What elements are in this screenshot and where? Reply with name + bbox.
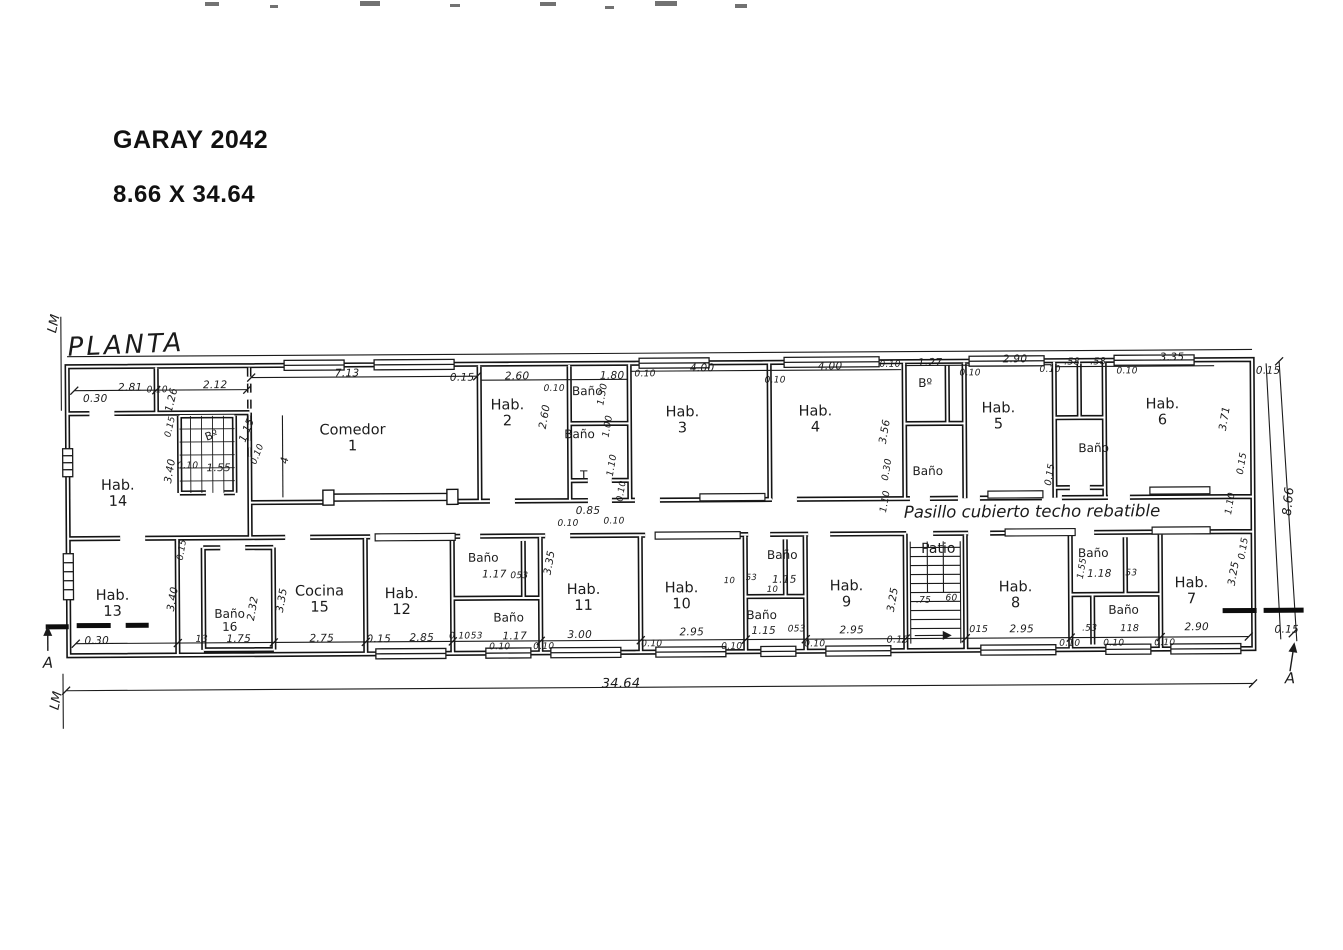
ptitle-planta: PLANTA [67,329,185,362]
floor-plan: PLANTALMLMAAPasillo cubierto techo rebat… [29,291,1327,729]
rsm-ba-o: Baño [572,385,603,398]
dim-2-95: 2.95 [1009,624,1034,635]
rsm-ba-o-16: Baño 16 [214,608,245,634]
dim-2-32: 2.32 [246,596,261,622]
dim-0-10: 0.10 [721,643,742,653]
dim-015: 015 [969,625,988,635]
dim-1-15: 1.15 [772,575,797,586]
dim-1-75: 1.75 [226,634,251,645]
dim-2-81: 2.81 [118,383,143,394]
dim-13: 13 [195,635,208,645]
scanned-floor-plan-page: { "header": { "title": "GARAY 2042", "su… [0,0,1343,950]
dim-0-15: 0.15 [177,539,190,562]
dim-1-55: 1.55 [206,463,231,474]
dim-0-15: 0.15 [450,373,475,384]
dim-0-10: 0.10 [489,643,510,653]
dim-2-75: 2.75 [309,633,334,644]
dim-60: 60 [945,594,957,604]
room-hab-13: Hab. 13 [96,589,130,621]
dim-0-10: 0.10 [147,386,168,396]
room-hab-5: Hab. 5 [982,401,1016,433]
rsm-ba-o: Baño [1078,442,1109,455]
dim-3-40: 3.40 [166,586,181,612]
room-hab-4: Hab. 4 [799,404,833,436]
dim-0-10: 0.10 [879,361,900,371]
dim-0-10: 0.10 [1040,366,1061,376]
dim-0-30: 0.30 [83,394,108,405]
rsm-ba-o: Baño [468,552,499,565]
dim-3-40: 3.40 [163,458,178,484]
dim-1-55: 1.55 [1077,557,1090,580]
rsm-t: T [580,469,587,482]
dim-0-15: 0.15 [366,634,391,645]
dim-0-10: 0.10 [1117,367,1138,377]
dim-2-90: 2.90 [1003,354,1028,365]
dim-10: 10 [767,586,778,595]
dim-2-95: 2.95 [839,625,864,636]
rsm-ba-o: Baño [912,465,943,478]
room-hab-3: Hab. 3 [666,405,700,437]
dim-1-10: 1.10 [879,490,893,514]
dim-3-35: 3.35 [543,550,558,576]
room-hab-2: Hab. 2 [491,398,525,430]
dim-0-10: 0.10 [250,443,267,466]
dim-0-85: 0.85 [576,506,601,517]
dim-053: 053 [510,572,528,582]
dim-1-30: 1.30 [596,383,610,407]
dim-1-18: 1.18 [1087,569,1112,580]
dim-4: 4 [280,456,292,465]
dim-118: 118 [1120,624,1139,634]
dim-1-80: 1.80 [600,371,625,382]
dim-0-10: 0.10 [544,385,565,395]
anno-a: A [43,655,53,671]
dim-2-85: 2.85 [409,633,434,644]
dim-0-10: 0.10 [804,640,825,650]
dim-3-56: 3.56 [878,419,893,445]
dim-3-25: 3.25 [1227,561,1242,587]
dim-0-10: 0.10 [1059,640,1080,650]
dim-1-26: 1.26 [164,387,181,414]
dim-1-17: 1.17 [502,631,527,642]
dim-8-66: 8.66 [1280,486,1296,516]
dim-0-10: 0.10 [557,520,578,530]
dim-3-00: 3.00 [567,630,592,641]
dim-1-15: 1.15 [238,417,258,444]
dim-0-15: 0.15 [887,635,909,645]
dim-3-35: 3.35 [275,587,290,613]
rsm-b: Bº [204,428,220,444]
dim-0-10: 0.10 [616,480,629,503]
dim-0-15: 0.15 [164,416,178,439]
room-hab-7: Hab. 7 [1175,576,1209,608]
dim-0-15: 0.15 [1256,366,1281,377]
dim-1-15: 1.15 [751,626,776,637]
dim-3-35: 3.35 [1160,352,1185,363]
dim-0-10: 0.10 [960,369,981,379]
dim-0-15: 0.15 [1274,625,1299,636]
dim-34-64: 34.64 [602,677,641,691]
dim-53: 53 [1125,569,1137,579]
anno-a: A [1285,670,1295,686]
dim-0-30: 0.30 [84,636,109,647]
dim-2-60: 2.60 [538,404,553,430]
dim-0-15: 0.15 [1237,537,1251,561]
room-hab-14: Hab. 14 [101,479,135,511]
dim-2-12: 2.12 [203,380,228,391]
anno-pasillo-cubierto-techo-rebatible: Pasillo cubierto techo rebatible [904,502,1160,521]
dim-1-00: 1.00 [602,415,616,439]
dim-0-10: 0.10 [635,370,656,380]
rsm-ba-o: Baño [1108,604,1139,617]
dim-0-15: 0.15 [1236,452,1250,476]
title-block: GARAY 2042 8.66 X 34.64 [113,126,268,209]
dim-53: .53 [1082,625,1097,635]
dim-1-27: 1.27 [918,358,943,369]
anno-lm: LM [46,313,63,334]
room-hab-12: Hab. 12 [385,587,419,619]
rsm-ba-o: Baño [1078,547,1109,560]
dim-53: 53 [471,632,483,642]
rsm-ba-o: Baño [746,609,777,622]
dim-0-15: 0.15 [1044,463,1058,487]
dim-2-95: 2.95 [679,627,704,638]
dim-0-10: 0.10 [177,462,198,472]
page-title: GARAY 2042 [113,126,268,155]
dim-10: 10 [724,577,735,586]
room-hab-6: Hab. 6 [1146,397,1180,429]
dim-0-10: 0.10 [603,517,624,527]
rsm-b: Bº [918,377,932,390]
room-cocina-15: Cocina 15 [295,584,344,616]
anno-lm: LM [48,690,65,711]
dim-2-60: 2.60 [505,371,530,382]
dim-1-10: 1.10 [1224,492,1238,516]
dim-7-13: 7.13 [335,368,360,379]
rsm-patio: Patio [921,542,955,557]
plan-labels: PLANTALMLMAAPasillo cubierto techo rebat… [29,291,1327,729]
dim-0-10: 0.10 [1154,639,1175,649]
dim-3-71: 3.71 [1218,406,1233,432]
dim-4-00: 4.00 [818,361,843,372]
rsm-ba-o: Baño [493,611,524,624]
dim-0-10: 0.10 [533,643,554,653]
dim-0-10: 0.10 [449,632,470,642]
dim-75: .75 [916,597,931,607]
dim-0-10: 0.10 [765,376,786,386]
dim-4-00: 4.00 [690,363,715,374]
dim-1-10: 1.10 [606,454,620,478]
dim-3-25: 3.25 [886,587,901,613]
dim-1-17: 1.17 [482,569,507,580]
room-hab-8: Hab. 8 [999,580,1033,612]
scan-artifacts [150,0,850,16]
dim-58: .58 [1090,357,1106,367]
dim-53: 53 [746,574,757,583]
dim-0-10: 0.10 [641,640,662,650]
room-comedor-1: Comedor 1 [319,423,385,455]
dim-053: 053 [788,625,806,635]
lot-dimensions: 8.66 X 34.64 [113,181,268,209]
rsm-ba-o: Baño [564,428,595,441]
dim-2-90: 2.90 [1184,622,1209,633]
dim-0-10: 0.10 [1103,639,1124,649]
room-hab-11: Hab. 11 [567,583,601,615]
rsm-ba-o: Baño [767,549,798,562]
room-hab-9: Hab. 9 [830,579,864,611]
room-hab-10: Hab. 10 [665,581,699,613]
dim-58: .58 [1064,357,1080,367]
dim-0-30: 0.30 [881,458,895,482]
